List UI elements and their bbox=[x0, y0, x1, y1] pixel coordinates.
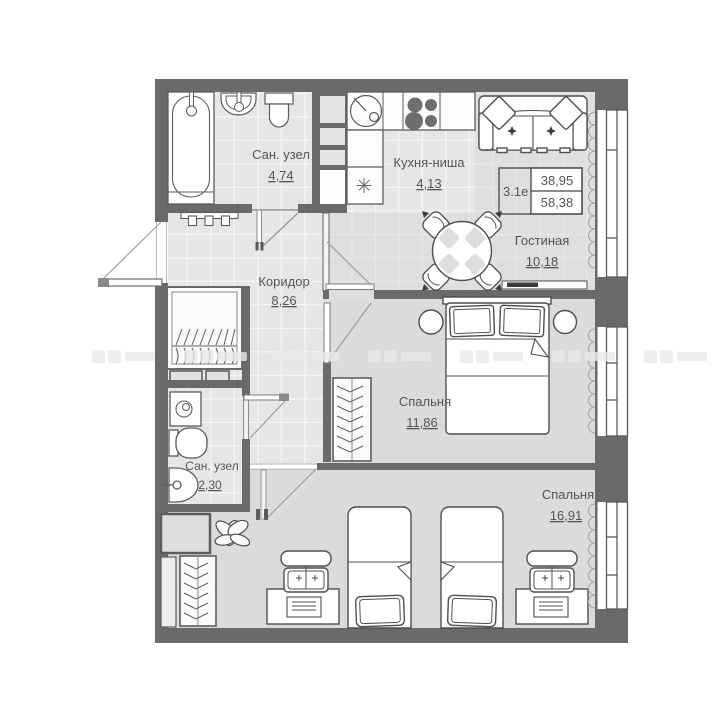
svg-text:Кухня-ниша: Кухня-ниша bbox=[393, 155, 465, 170]
svg-text:3.1е: 3.1е bbox=[503, 184, 528, 199]
svg-text:16,91: 16,91 bbox=[550, 508, 583, 523]
svg-text:Сан. узел: Сан. узел bbox=[252, 147, 310, 162]
svg-text:Спальня: Спальня bbox=[399, 394, 451, 409]
svg-text:Гостиная: Гостиная bbox=[515, 233, 570, 248]
svg-text:4,74: 4,74 bbox=[268, 168, 293, 183]
svg-text:4,13: 4,13 bbox=[416, 176, 441, 191]
svg-text:10,18: 10,18 bbox=[526, 254, 559, 269]
svg-text:Сан. узел: Сан. узел bbox=[185, 459, 238, 473]
svg-text:58,38: 58,38 bbox=[541, 195, 574, 210]
svg-text:11,86: 11,86 bbox=[406, 415, 438, 430]
svg-text:38,95: 38,95 bbox=[541, 173, 574, 188]
svg-text:Спальня: Спальня bbox=[542, 487, 594, 502]
svg-text:2,30: 2,30 bbox=[198, 478, 222, 492]
svg-text:8,26: 8,26 bbox=[271, 293, 296, 308]
svg-text:Коридор: Коридор bbox=[258, 274, 309, 289]
